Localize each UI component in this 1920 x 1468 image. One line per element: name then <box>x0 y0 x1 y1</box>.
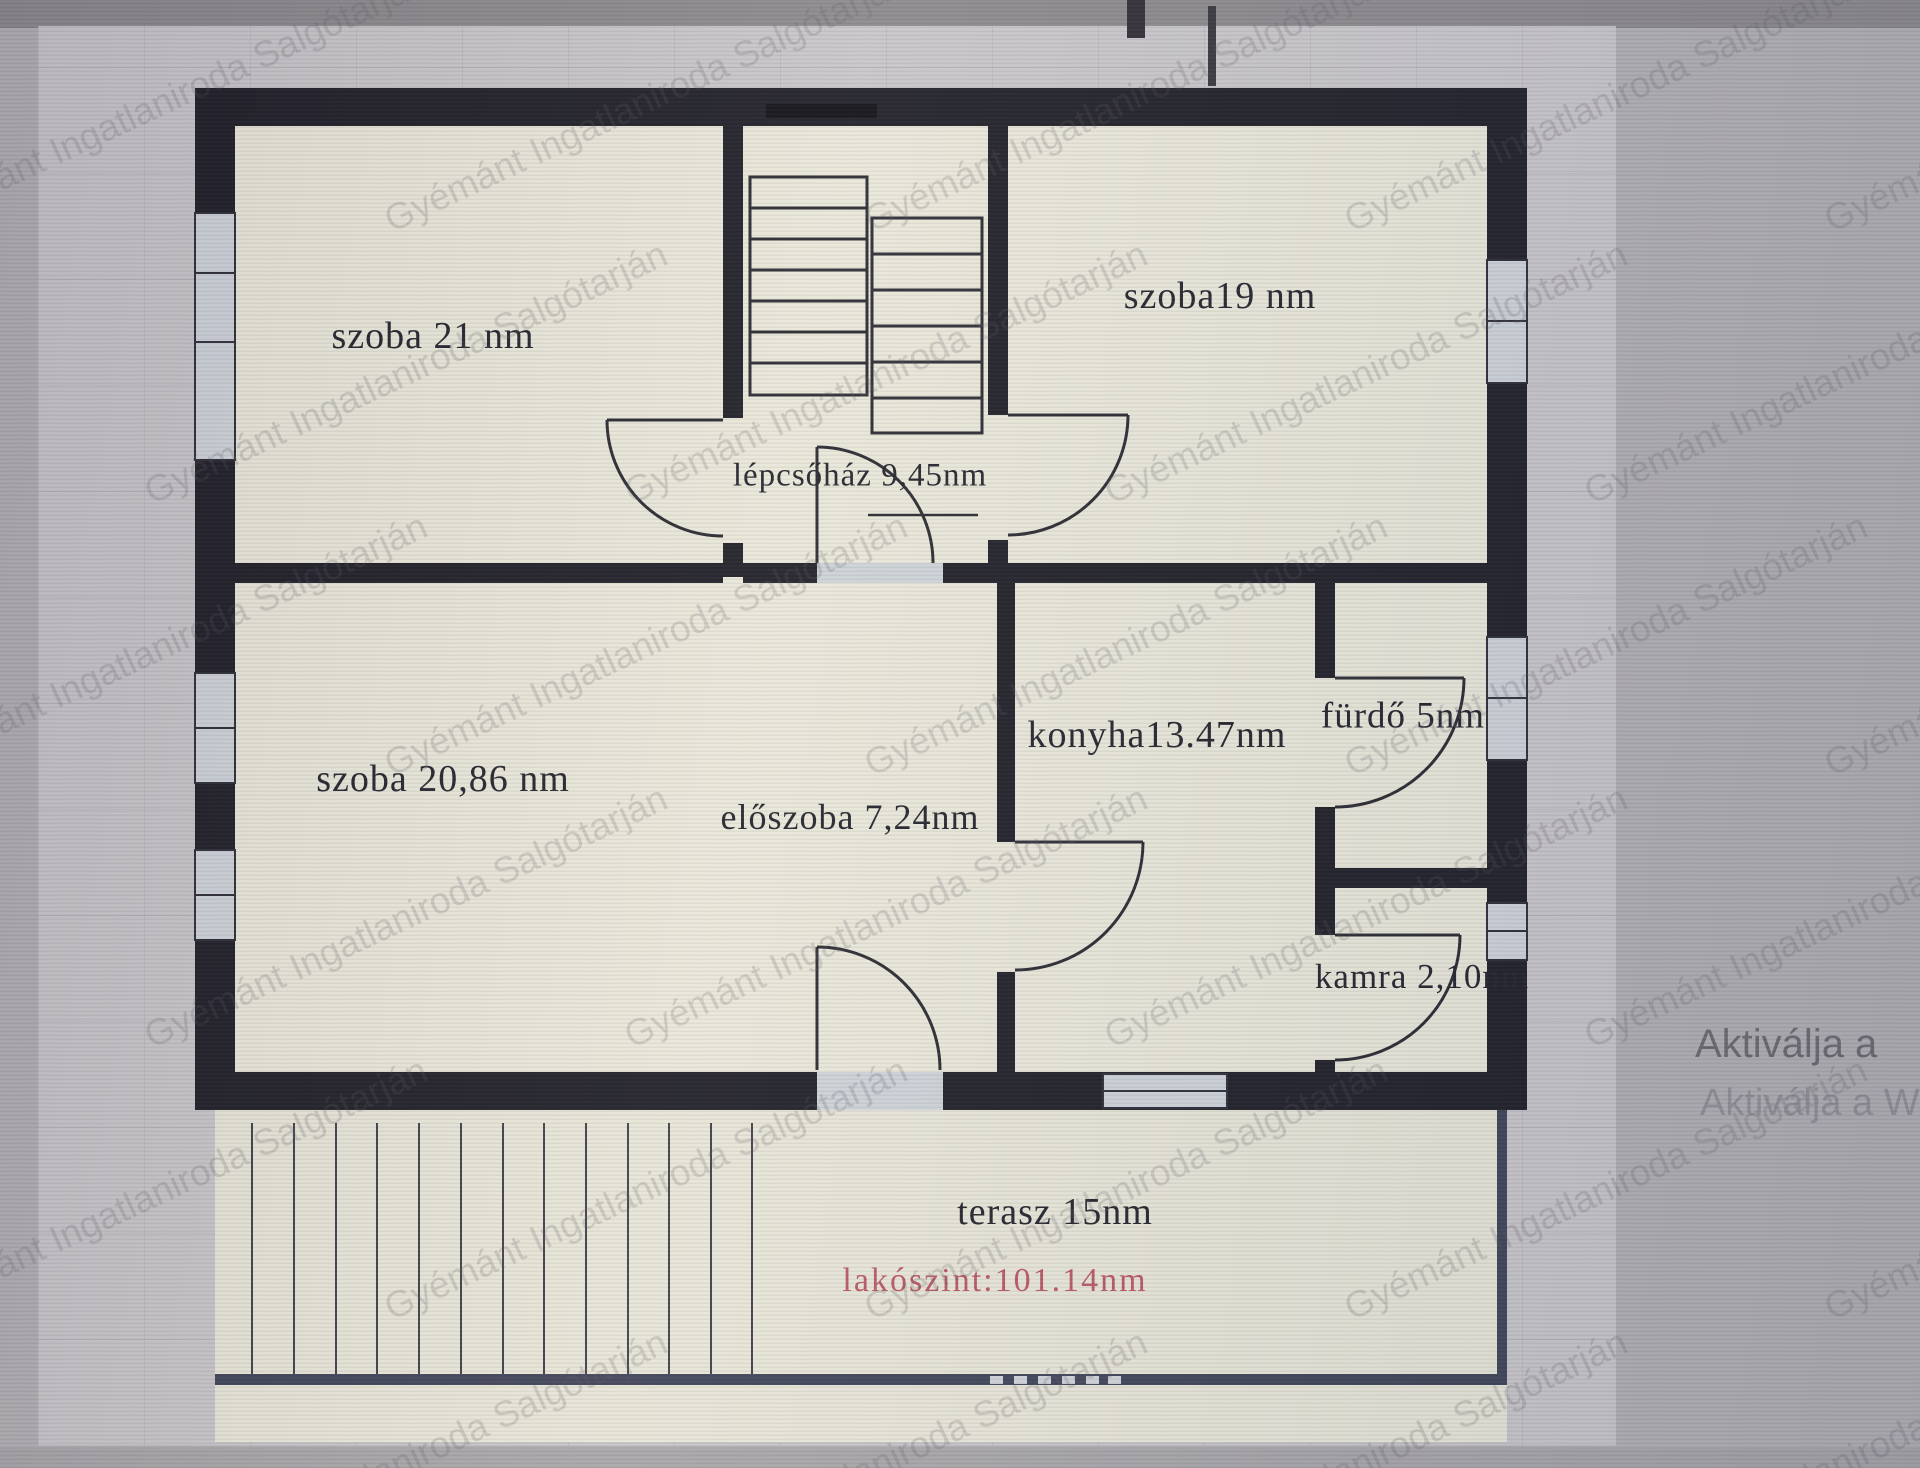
room-label-eloszoba: előszoba 7,24nm <box>721 796 980 838</box>
activation-watermark-line2: Aktiválja a Wi <box>1700 1082 1920 1125</box>
floorplan-drawing <box>0 0 1920 1468</box>
room-label-lepcsohaz: lépcsőház 9,45nm <box>733 458 987 495</box>
room-label-szoba19: szoba19 nm <box>1124 274 1317 318</box>
activation-watermark-line1: Aktiválja a <box>1695 1022 1877 1067</box>
top-mark <box>1208 6 1216 86</box>
room-label-kamra: kamra 2,10nm <box>1315 957 1529 997</box>
room-label-terasz: terasz 15nm <box>957 1190 1153 1234</box>
floor-area <box>235 126 1487 1072</box>
room-label-furdo: fürdő 5nm <box>1321 695 1485 738</box>
room-label-szoba21: szoba 21 nm <box>331 314 534 358</box>
floorplan-photo: szoba 21 nm szoba19 nm lépcsőház 9,45nm … <box>0 0 1920 1468</box>
top-wall-inset <box>766 104 877 118</box>
top-mark <box>1127 0 1145 38</box>
room-label-szoba2086: szoba 20,86 nm <box>316 757 570 801</box>
total-area-label: lakószint:101.14nm <box>842 1262 1147 1300</box>
room-label-konyha: konyha13.47nm <box>1028 713 1287 757</box>
